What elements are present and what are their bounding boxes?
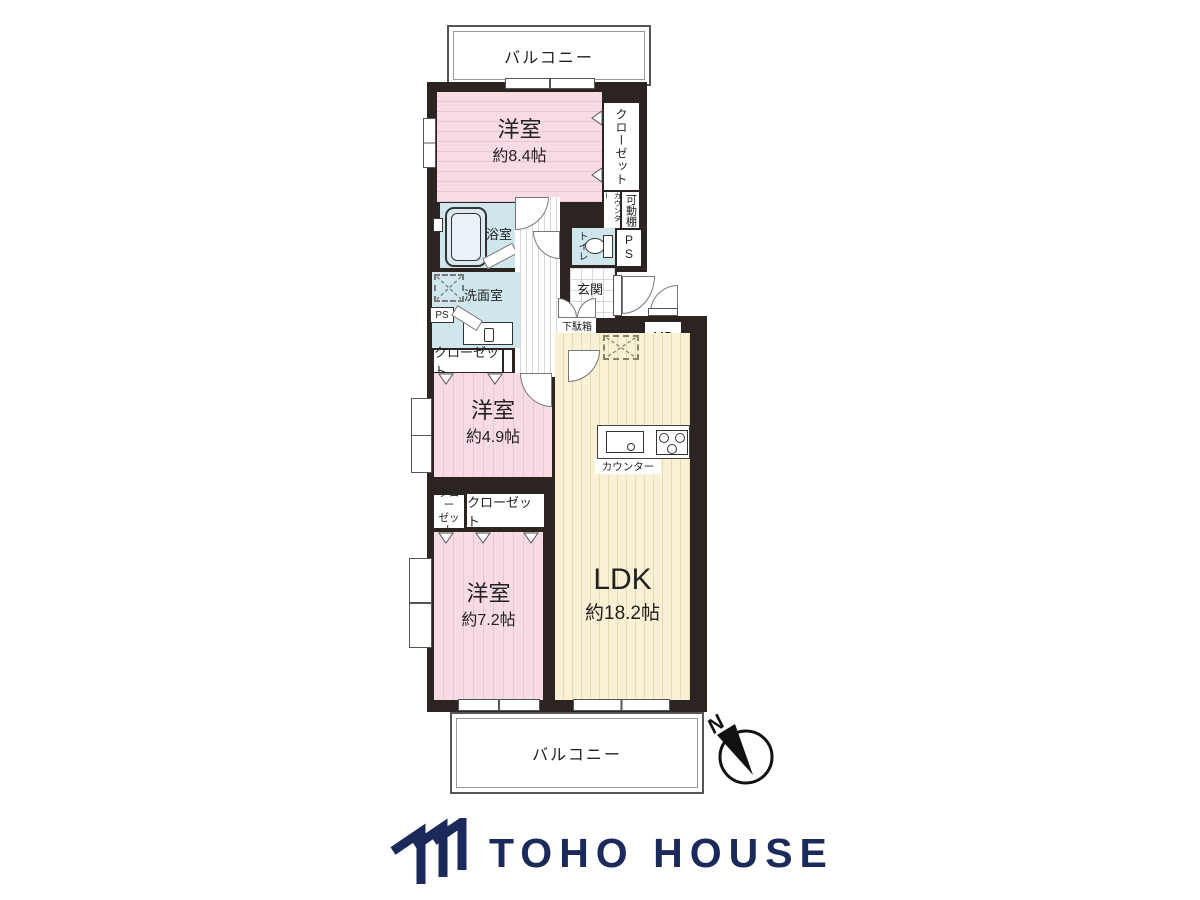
room-bedroom-main-label: 洋室 約8.4帖 — [437, 116, 602, 167]
closet-top-label: クローゼット — [613, 108, 630, 186]
bifold-door-icon — [487, 373, 503, 385]
closet-mid: クローゼット — [467, 494, 544, 527]
pipe-space-top-label: P S — [625, 234, 633, 262]
closet-small-label: クロー ゼット — [434, 487, 464, 535]
sink-drain-icon — [627, 443, 635, 451]
washer-space — [434, 274, 464, 302]
room-bedroom-mid-label: 洋室 約4.9帖 — [434, 397, 552, 448]
bathtub — [445, 207, 487, 267]
room-bedroom-lower-size: 約7.2帖 — [434, 611, 543, 631]
stove-burner-icon — [659, 433, 669, 443]
kitchen-counter — [597, 425, 690, 459]
kitchen-counter-label: カウンター — [602, 459, 655, 474]
bifold-door-icon — [475, 532, 491, 544]
kitchen-stove — [656, 430, 688, 455]
closet-hall-door — [504, 350, 512, 372]
washer-space-cross-icon — [436, 276, 462, 300]
compass: N — [701, 709, 791, 794]
ldk-hatch-cross-icon — [605, 337, 637, 358]
room-toilet: トイレ — [572, 228, 615, 265]
ldk-label: LDK 約18.2帖 — [555, 561, 690, 625]
entry-child-door-leaf — [648, 308, 678, 316]
floor-plan: バルコニー バルコニー 洋室 約8.4帖 クローゼット カウンター 可動棚 P … — [403, 15, 793, 800]
closet-small: クロー ゼット — [434, 495, 464, 528]
ldk-size: 約18.2帖 — [555, 602, 690, 626]
kitchen-counter-label-box: カウンター — [595, 459, 661, 474]
balcony-top: バルコニー — [447, 25, 651, 86]
window-top — [505, 78, 595, 89]
window-left-main — [423, 118, 436, 168]
entry-door-leaf — [613, 275, 622, 316]
balcony-bottom-label: バルコニー — [452, 714, 702, 792]
bifold-door-icon — [438, 532, 454, 544]
room-bedroom-lower: 洋室 約7.2帖 — [434, 532, 543, 700]
bifold-door-icon — [591, 110, 603, 126]
pipe-space-left-label: PS — [435, 310, 448, 321]
closet-mid-label: クローゼット — [467, 492, 544, 530]
room-bedroom-main-size: 約8.4帖 — [437, 147, 602, 167]
toilet-tank — [603, 235, 613, 258]
bifold-door-icon — [523, 532, 539, 544]
balcony-bottom: バルコニー — [450, 712, 704, 794]
brand-logo-icon — [390, 818, 474, 888]
washbasin-tap — [484, 328, 494, 342]
window-left-lower — [409, 558, 432, 648]
movable-shelf-label: 可動棚 — [623, 194, 639, 227]
room-bedroom-main-name: 洋室 — [437, 116, 602, 144]
counter-shelf-label: カウンター — [601, 192, 623, 228]
movable-shelf: 可動棚 — [622, 192, 639, 228]
balcony-top-label: バルコニー — [449, 27, 649, 84]
brand-name: TOHO HOUSE — [489, 830, 834, 877]
bathroom-label: 浴室 — [486, 224, 512, 243]
window-bottom-bedroom — [458, 699, 540, 711]
room-bedroom-mid-size: 約4.9帖 — [434, 428, 552, 448]
room-bedroom-lower-label: 洋室 約7.2帖 — [434, 580, 543, 631]
closet-top: クローゼット — [604, 103, 639, 190]
window-left-mid — [411, 398, 432, 473]
room-bedroom-lower-name: 洋室 — [434, 580, 543, 608]
pipe-space-top: P S — [617, 230, 641, 266]
kitchen-sink — [606, 431, 644, 453]
shoe-cabinet: 下駄箱 — [558, 318, 596, 333]
ldk-name: LDK — [555, 561, 690, 599]
washroom-label: 洗面室 — [464, 285, 503, 304]
shoe-cabinet-label: 下駄箱 — [562, 318, 592, 333]
toilet-bowl — [585, 238, 605, 254]
ldk-hatch-box — [603, 335, 639, 360]
counter-shelf: カウンター — [604, 192, 620, 228]
window-bottom-ldk — [573, 699, 670, 711]
stove-burner-icon — [667, 444, 677, 454]
closet-hall: クローゼット — [434, 350, 502, 372]
entrance-label: 玄関 — [577, 279, 603, 298]
bifold-door-icon — [591, 167, 603, 183]
stove-burner-icon — [675, 433, 685, 443]
bath-faucet-box — [433, 218, 443, 232]
bifold-door-icon — [438, 373, 454, 385]
room-ldk: LDK 約18.2帖 — [555, 333, 690, 700]
room-bedroom-main: 洋室 約8.4帖 — [437, 92, 602, 202]
